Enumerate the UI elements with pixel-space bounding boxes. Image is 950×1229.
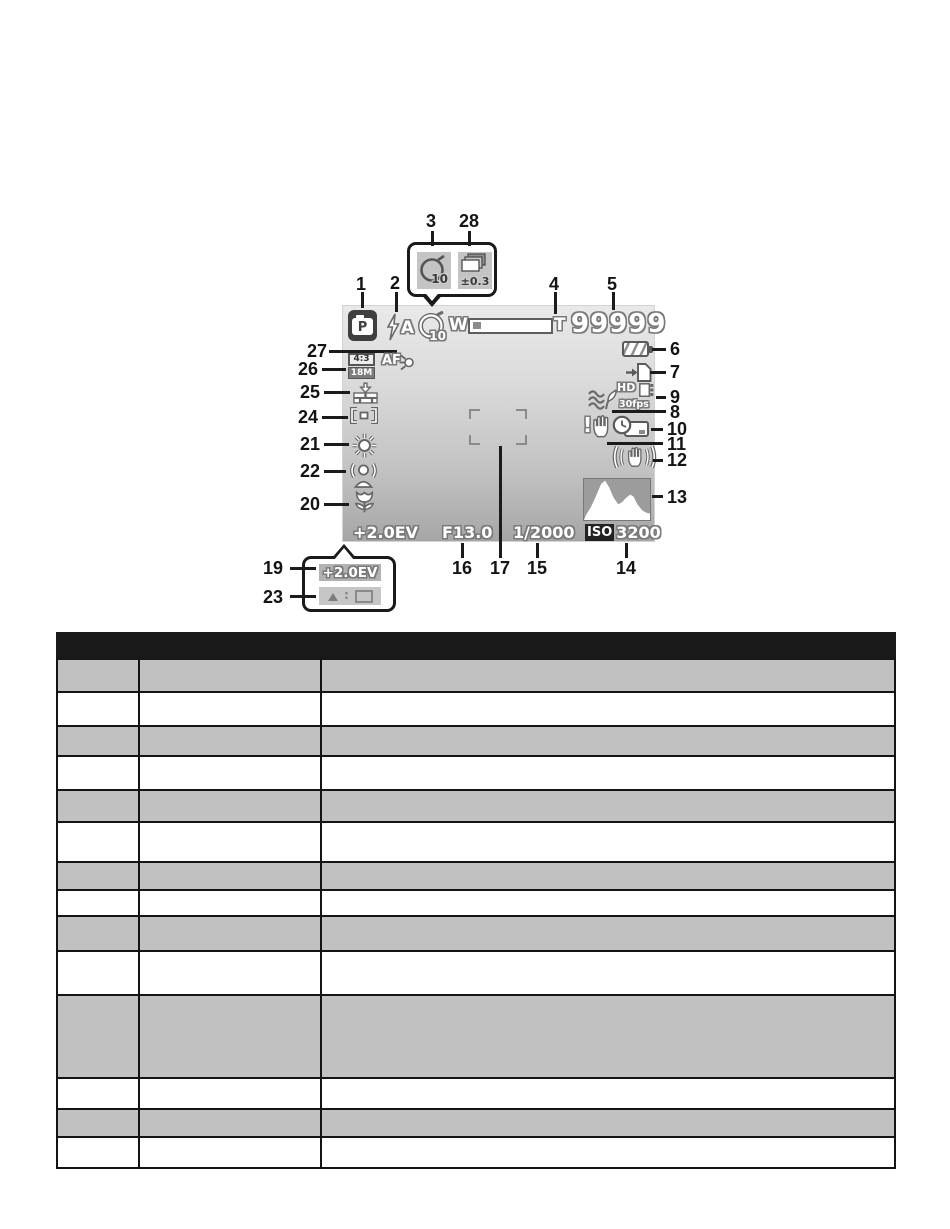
table-cell [321, 1078, 895, 1109]
focus-frame [469, 409, 527, 445]
film-strip-icon [639, 383, 654, 397]
table-row [57, 995, 895, 1078]
self-timer-tile: 10 [417, 252, 451, 289]
callout-7: 7 [670, 363, 680, 381]
callout-24: 24 [298, 408, 318, 426]
bracketing-tile: ±0.3 [458, 252, 492, 289]
zoom-wide-label: W [449, 315, 468, 335]
callout-17: 17 [490, 559, 510, 577]
bubble-tail-fill [334, 548, 354, 560]
callout-line [650, 371, 666, 374]
table-row [57, 692, 895, 726]
callout-line [324, 443, 349, 446]
self-timer-seconds: 10 [429, 329, 446, 343]
callout-line [324, 470, 346, 473]
exposure-chip: +2.0EV [319, 564, 381, 581]
table-cell [139, 890, 321, 916]
table-row [57, 951, 895, 995]
callout-16: 16 [452, 559, 472, 577]
table-cell [139, 692, 321, 726]
table-cell [57, 916, 139, 951]
zoom-bar [468, 318, 553, 334]
callout-line [656, 396, 666, 399]
shutter-speed: 1/2000 [513, 523, 575, 542]
callout-5: 5 [607, 275, 617, 293]
zoom-tele-label: T [554, 315, 566, 335]
shake-warning-icon: ! [583, 413, 610, 439]
white-balance-icon [351, 433, 378, 458]
table-cell [139, 1078, 321, 1109]
iso-badge: ISO [585, 524, 614, 541]
table-cell [139, 1109, 321, 1137]
table-cell [57, 756, 139, 790]
table-cell [321, 951, 895, 995]
histogram [583, 478, 651, 521]
table-row [57, 822, 895, 862]
exposure-value: +2.0EV [353, 523, 418, 542]
self-timer-seconds: 10 [431, 272, 448, 286]
table-row [57, 862, 895, 890]
callout-line [612, 292, 615, 310]
table-row [57, 1078, 895, 1109]
bracket-step: ±0.3 [458, 275, 492, 288]
zoom-indicator [473, 322, 481, 329]
table-cell [57, 1078, 139, 1109]
callout-line [395, 292, 398, 312]
callout-line [431, 231, 434, 246]
callout-line [499, 446, 502, 558]
table-cell [321, 916, 895, 951]
movie-fps-label: 30fps [619, 399, 649, 410]
callout-line [651, 428, 663, 431]
callout-line [653, 459, 663, 462]
megapixel-chip: 18M [348, 367, 375, 379]
table-cell [139, 726, 321, 756]
callout-26: 26 [298, 360, 318, 378]
callout-line [625, 543, 628, 558]
table-row [57, 756, 895, 790]
callout-line [324, 391, 350, 394]
callout-line [290, 567, 316, 570]
callout-13: 13 [667, 488, 687, 506]
movie-size-icon: HD 30fps [617, 383, 656, 407]
manual-page: P A 10 W T 99999 [0, 0, 950, 1229]
table-cell [57, 1137, 139, 1168]
quality-icon [353, 382, 378, 404]
hand-icon [629, 448, 641, 467]
aspect-ratio-chip: 4:3 [348, 353, 375, 366]
callout-line [322, 416, 348, 419]
iso-number: 3200 [616, 523, 661, 542]
table-row [57, 1137, 895, 1168]
table-cell [57, 995, 139, 1078]
callout-2: 2 [390, 274, 400, 292]
callout-line [324, 503, 349, 506]
mode-letter: P [348, 320, 377, 335]
exposure-value: +2.0EV [323, 565, 378, 581]
table-cell [57, 890, 139, 916]
callout-line [536, 543, 539, 558]
macro-icon [352, 490, 377, 515]
callout-14: 14 [616, 559, 636, 577]
table-cell [57, 1109, 139, 1137]
legend-table [56, 632, 896, 1169]
table-cell [321, 890, 895, 916]
storage-icon [625, 362, 652, 383]
callout-line [607, 442, 663, 445]
table-row [57, 790, 895, 822]
self-timer-icon: 10 [417, 311, 448, 343]
table-cell [321, 822, 895, 862]
callout-20: 20 [300, 495, 320, 513]
table-cell [139, 916, 321, 951]
af-lamp-icon: AF [382, 353, 414, 372]
callout-21: 21 [300, 435, 320, 453]
table-cell [321, 756, 895, 790]
resolution-icon: 4:3 18M [348, 353, 375, 378]
shots-remaining: 99999 [571, 309, 666, 339]
table-row [57, 916, 895, 951]
table-cell [321, 726, 895, 756]
callout-22: 22 [300, 462, 320, 480]
table-cell [139, 822, 321, 862]
table-cell [321, 692, 895, 726]
bubble-tail-fill [422, 289, 442, 301]
lightning-bolt-icon [386, 313, 400, 343]
hint-colon: : [344, 588, 349, 602]
table-cell [57, 659, 139, 692]
table-row [57, 726, 895, 756]
iso-value: ISO3200 [585, 523, 661, 543]
table-cell [57, 790, 139, 822]
date-stamp-icon [612, 415, 650, 438]
record-mode-icon: P [348, 310, 377, 341]
table-cell [57, 692, 139, 726]
inset-bubble-bottom: +2.0EV : [302, 556, 396, 612]
callout-6: 6 [670, 340, 680, 358]
callout-27: 27 [307, 342, 327, 360]
table-cell [57, 822, 139, 862]
table-cell [321, 659, 895, 692]
face-tracking-icon [348, 462, 379, 488]
table-cell [321, 790, 895, 822]
table-cell [321, 995, 895, 1078]
metering-frame-icon [355, 590, 373, 603]
hand-icon [591, 414, 610, 438]
callout-19: 19 [263, 559, 283, 577]
callout-12: 12 [667, 451, 687, 469]
table-cell [139, 790, 321, 822]
callout-line [652, 348, 666, 351]
aperture-value: F13.0 [442, 523, 492, 542]
table-row [57, 1109, 895, 1137]
table-cell [139, 995, 321, 1078]
callout-4: 4 [549, 275, 559, 293]
callout-1: 1 [356, 275, 366, 293]
flash-auto-icon: A [386, 313, 414, 343]
stabilizer-icon [612, 445, 657, 469]
table-cell [57, 951, 139, 995]
callout-15: 15 [527, 559, 547, 577]
table-header-row [57, 633, 895, 659]
flash-mode-letter: A [401, 318, 414, 338]
lamp-rays-icon [399, 354, 414, 371]
movie-hd-label: HD [617, 381, 635, 394]
table-row [57, 890, 895, 916]
inset-bubble-top: 10 ±0.3 [407, 242, 497, 297]
battery-icon [622, 341, 653, 357]
callout-line [361, 292, 364, 308]
callout-28: 28 [459, 212, 479, 230]
callout-3: 3 [426, 212, 436, 230]
table-cell [139, 862, 321, 890]
callout-line [612, 410, 666, 413]
up-arrow-icon [328, 593, 338, 601]
table-cell [139, 756, 321, 790]
table-cell [139, 659, 321, 692]
callout-23: 23 [263, 588, 283, 606]
table-cell [139, 951, 321, 995]
table-cell [321, 862, 895, 890]
wind-cut-icon [588, 387, 618, 411]
table-cell [57, 726, 139, 756]
callout-line [554, 292, 557, 314]
callout-line [322, 368, 346, 371]
table-cell [321, 1137, 895, 1168]
table-cell [57, 862, 139, 890]
table-row [57, 659, 895, 692]
callout-line [652, 495, 663, 498]
callout-25: 25 [300, 383, 320, 401]
table-cell [139, 1137, 321, 1168]
callout-line [468, 231, 471, 246]
table-header [57, 633, 895, 659]
metering-icon [350, 407, 378, 424]
exposure-hint-chip: : [319, 587, 381, 605]
table-cell [321, 1109, 895, 1137]
callout-line [461, 543, 464, 558]
callout-line [290, 595, 316, 598]
